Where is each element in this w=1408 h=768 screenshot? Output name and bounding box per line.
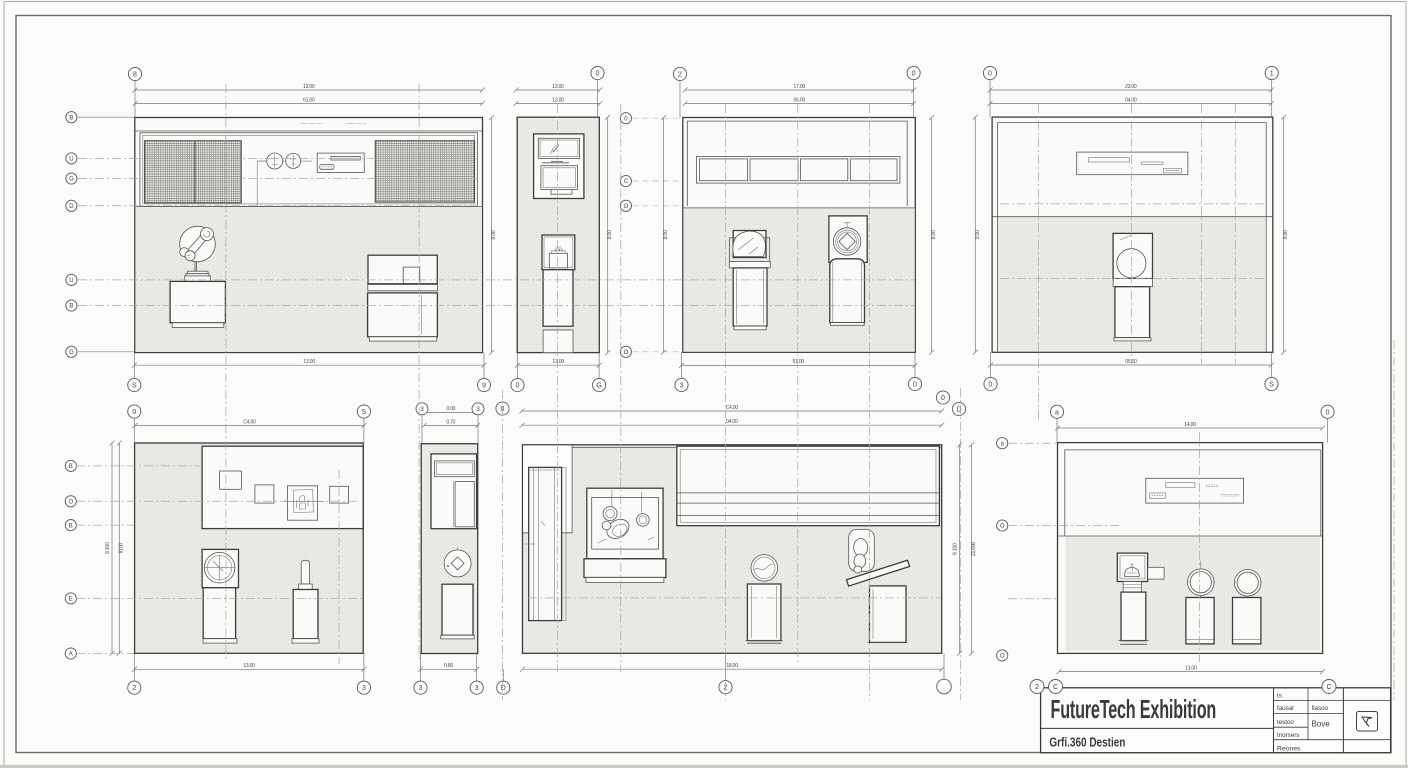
svg-text:Grfi.360 Destien: Grfi.360 Destien bbox=[1049, 736, 1125, 749]
svg-text:S: S bbox=[362, 409, 367, 416]
svg-text:0: 0 bbox=[912, 71, 916, 78]
svg-text:ts: ts bbox=[1277, 692, 1282, 699]
svg-text:B: B bbox=[69, 523, 73, 529]
svg-text:C: C bbox=[1326, 684, 1331, 691]
svg-text:23.00: 23.00 bbox=[1125, 84, 1137, 90]
svg-text:3: 3 bbox=[420, 406, 424, 413]
svg-text:9: 9 bbox=[482, 383, 486, 390]
svg-text:2: 2 bbox=[132, 685, 136, 692]
svg-text:FutureTech Exhibition: FutureTech Exhibition bbox=[1051, 694, 1217, 724]
svg-text:E: E bbox=[69, 597, 73, 603]
svg-text:B: B bbox=[69, 304, 73, 310]
svg-text:O: O bbox=[1000, 654, 1005, 660]
svg-text:3: 3 bbox=[476, 406, 480, 413]
svg-text:3: 3 bbox=[362, 685, 366, 692]
svg-text:D: D bbox=[501, 685, 506, 692]
svg-text:B: B bbox=[69, 464, 73, 470]
svg-text:3: 3 bbox=[419, 685, 423, 692]
svg-text:C: C bbox=[624, 179, 629, 185]
svg-text:3: 3 bbox=[475, 685, 479, 692]
svg-text:04.00: 04.00 bbox=[726, 419, 738, 425]
svg-text:13.00: 13.00 bbox=[1185, 665, 1197, 671]
svg-text:B: B bbox=[69, 115, 73, 121]
svg-text:0: 0 bbox=[1326, 409, 1330, 416]
svg-text:U: U bbox=[69, 157, 73, 163]
svg-text:O: O bbox=[68, 499, 73, 505]
svg-text:C4.00: C4.00 bbox=[243, 419, 256, 425]
svg-text:Inorsers: Inorsers bbox=[1277, 732, 1299, 739]
svg-text:Bove: Bove bbox=[1312, 720, 1331, 729]
svg-text:0: 0 bbox=[596, 71, 600, 78]
svg-text:13.00: 13.00 bbox=[553, 359, 565, 365]
svg-text:61.00: 61.00 bbox=[303, 97, 315, 103]
svg-text:G: G bbox=[596, 383, 601, 390]
svg-text:13.00: 13.00 bbox=[552, 84, 564, 90]
svg-text:0.70: 0.70 bbox=[446, 419, 455, 425]
svg-text:0.80: 0.80 bbox=[444, 663, 453, 669]
svg-text:14.00: 14.00 bbox=[1184, 422, 1196, 428]
svg-text:O: O bbox=[624, 204, 629, 210]
svg-text:18.00: 18.00 bbox=[726, 663, 738, 669]
svg-text:04.00: 04.00 bbox=[1125, 97, 1137, 103]
svg-text:S: S bbox=[1269, 382, 1274, 389]
svg-text:13.00: 13.00 bbox=[243, 663, 255, 669]
svg-text:8.00: 8.00 bbox=[931, 230, 937, 239]
svg-text:51.00: 51.00 bbox=[792, 359, 804, 365]
svg-text:a: a bbox=[1055, 409, 1059, 416]
svg-text:fiasoo: fiasoo bbox=[1312, 705, 1329, 712]
svg-text:0: 0 bbox=[516, 383, 520, 390]
svg-text:8: 8 bbox=[133, 72, 137, 79]
svg-text:8.00: 8.00 bbox=[607, 230, 613, 239]
svg-text:8100: 8100 bbox=[119, 543, 125, 554]
svg-text:0: 0 bbox=[913, 382, 917, 389]
svg-text:fausar: fausar bbox=[1277, 705, 1294, 712]
svg-text:D: D bbox=[69, 204, 74, 210]
svg-text:C4.00: C4.00 bbox=[726, 405, 739, 411]
svg-text:0: 0 bbox=[132, 409, 136, 416]
svg-text:8.00: 8.00 bbox=[663, 230, 669, 239]
svg-text:2: 2 bbox=[678, 72, 682, 79]
svg-text:13.00: 13.00 bbox=[303, 84, 315, 90]
svg-text:21.600: 21.600 bbox=[971, 542, 977, 557]
svg-text:8.00: 8.00 bbox=[491, 230, 497, 239]
svg-text:U: U bbox=[69, 278, 73, 284]
svg-text:13.00: 13.00 bbox=[552, 97, 564, 103]
svg-text:Reones: Reones bbox=[1277, 745, 1301, 752]
svg-text:0: 0 bbox=[941, 395, 945, 402]
svg-text:1: 1 bbox=[1270, 71, 1274, 78]
svg-text:0.00: 0.00 bbox=[446, 406, 455, 412]
svg-text:0: 0 bbox=[988, 71, 992, 78]
svg-text:A: A bbox=[69, 652, 73, 658]
svg-text:O: O bbox=[624, 350, 629, 356]
svg-text:8.100: 8.100 bbox=[105, 542, 111, 554]
svg-text:C: C bbox=[1053, 684, 1058, 691]
svg-text:G: G bbox=[69, 350, 74, 356]
svg-text:9.00: 9.00 bbox=[975, 230, 981, 239]
svg-text:O: O bbox=[1000, 524, 1005, 530]
svg-text:13.00: 13.00 bbox=[303, 359, 315, 365]
svg-text:3: 3 bbox=[680, 383, 684, 390]
svg-text:8.100: 8.100 bbox=[953, 543, 959, 555]
svg-text:testoo: testoo bbox=[1277, 719, 1294, 726]
svg-text:......... .... ..: ......... .... .. bbox=[346, 120, 366, 126]
svg-text:0: 0 bbox=[989, 382, 993, 389]
svg-text:17.00: 17.00 bbox=[794, 84, 806, 90]
svg-text:G: G bbox=[69, 177, 74, 183]
svg-text:8.00: 8.00 bbox=[1283, 230, 1289, 239]
svg-text:05.00: 05.00 bbox=[794, 97, 806, 103]
svg-text:S: S bbox=[132, 383, 137, 390]
svg-text:2: 2 bbox=[1035, 684, 1039, 691]
svg-text:...... ...... .....: ...... ...... ..... bbox=[300, 120, 323, 126]
